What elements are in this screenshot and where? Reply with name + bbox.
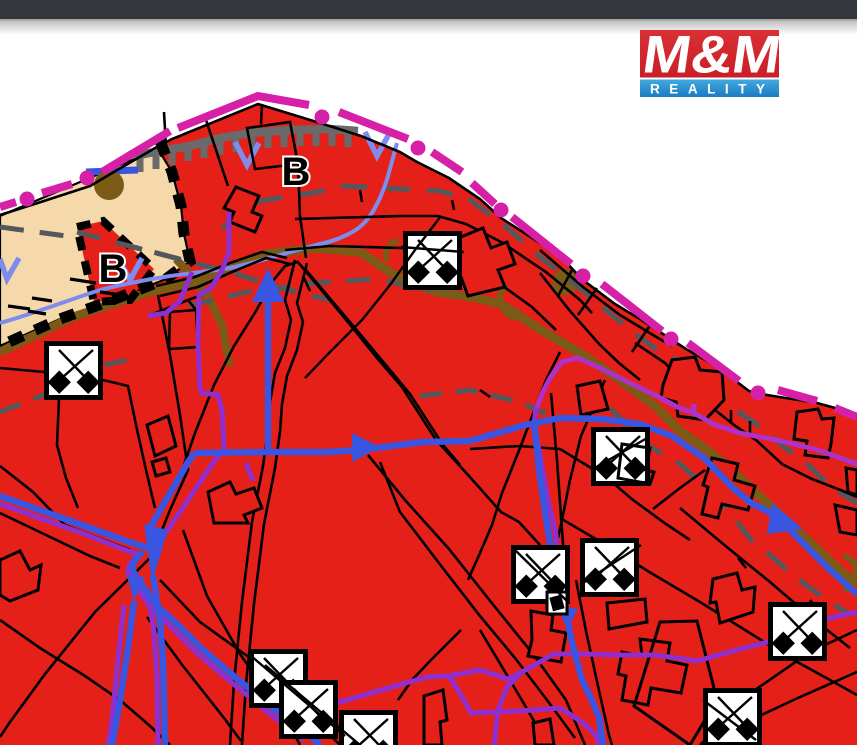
svg-text:B: B bbox=[99, 247, 128, 291]
svg-text:B: B bbox=[282, 150, 311, 194]
svg-text:M&M: M&M bbox=[639, 26, 784, 85]
